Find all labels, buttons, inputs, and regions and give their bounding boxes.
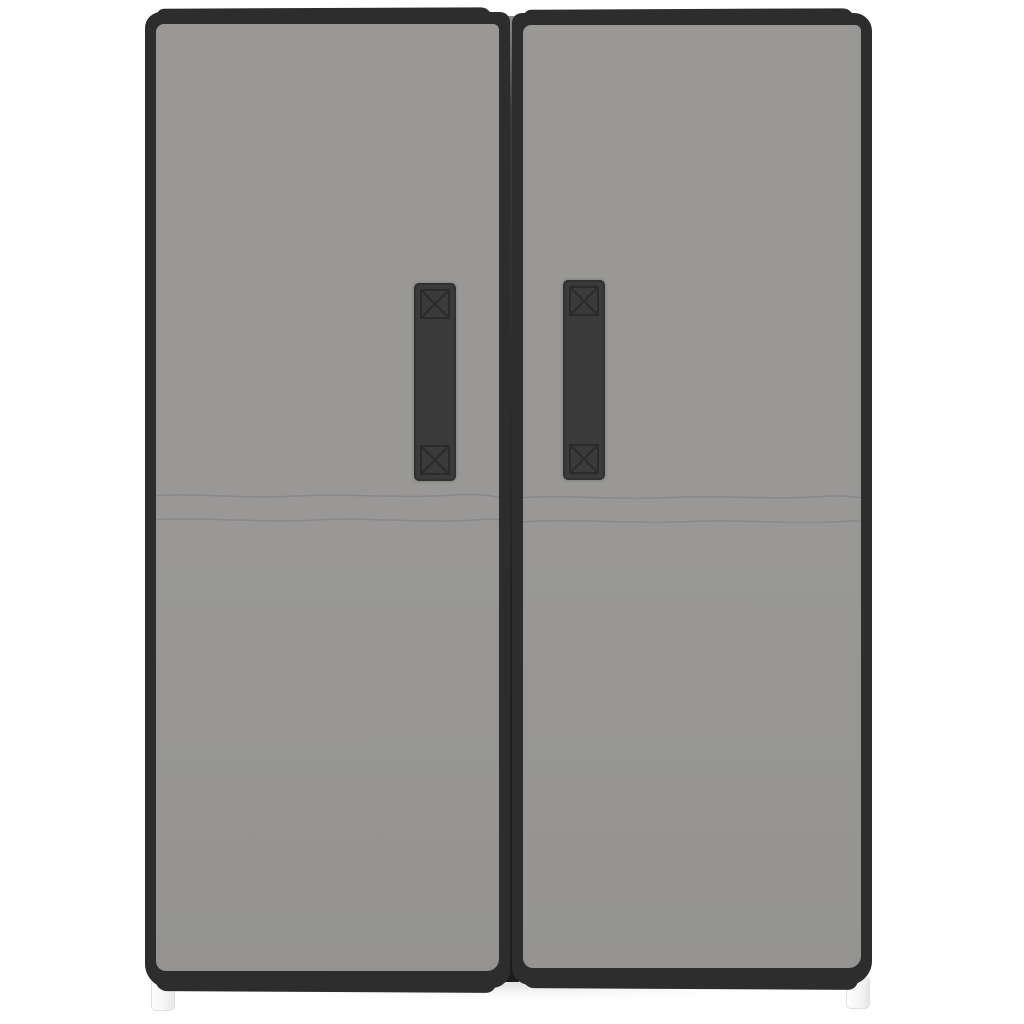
right-door-handle [563,280,605,480]
left-door [145,12,510,988]
handle-stitch-bottom-icon [567,442,601,476]
left-door-panel [156,24,499,971]
right-door-seam-lines [523,481,861,541]
right-door-panel [523,25,861,968]
product-photo [0,0,1024,1024]
left-door-seam-lines [156,480,499,540]
handle-stitch-top-icon [418,287,452,321]
right-door [512,13,872,985]
handle-stitch-top-icon [567,284,601,318]
left-door-handle [414,283,456,481]
handle-stitch-bottom-icon [418,443,452,477]
